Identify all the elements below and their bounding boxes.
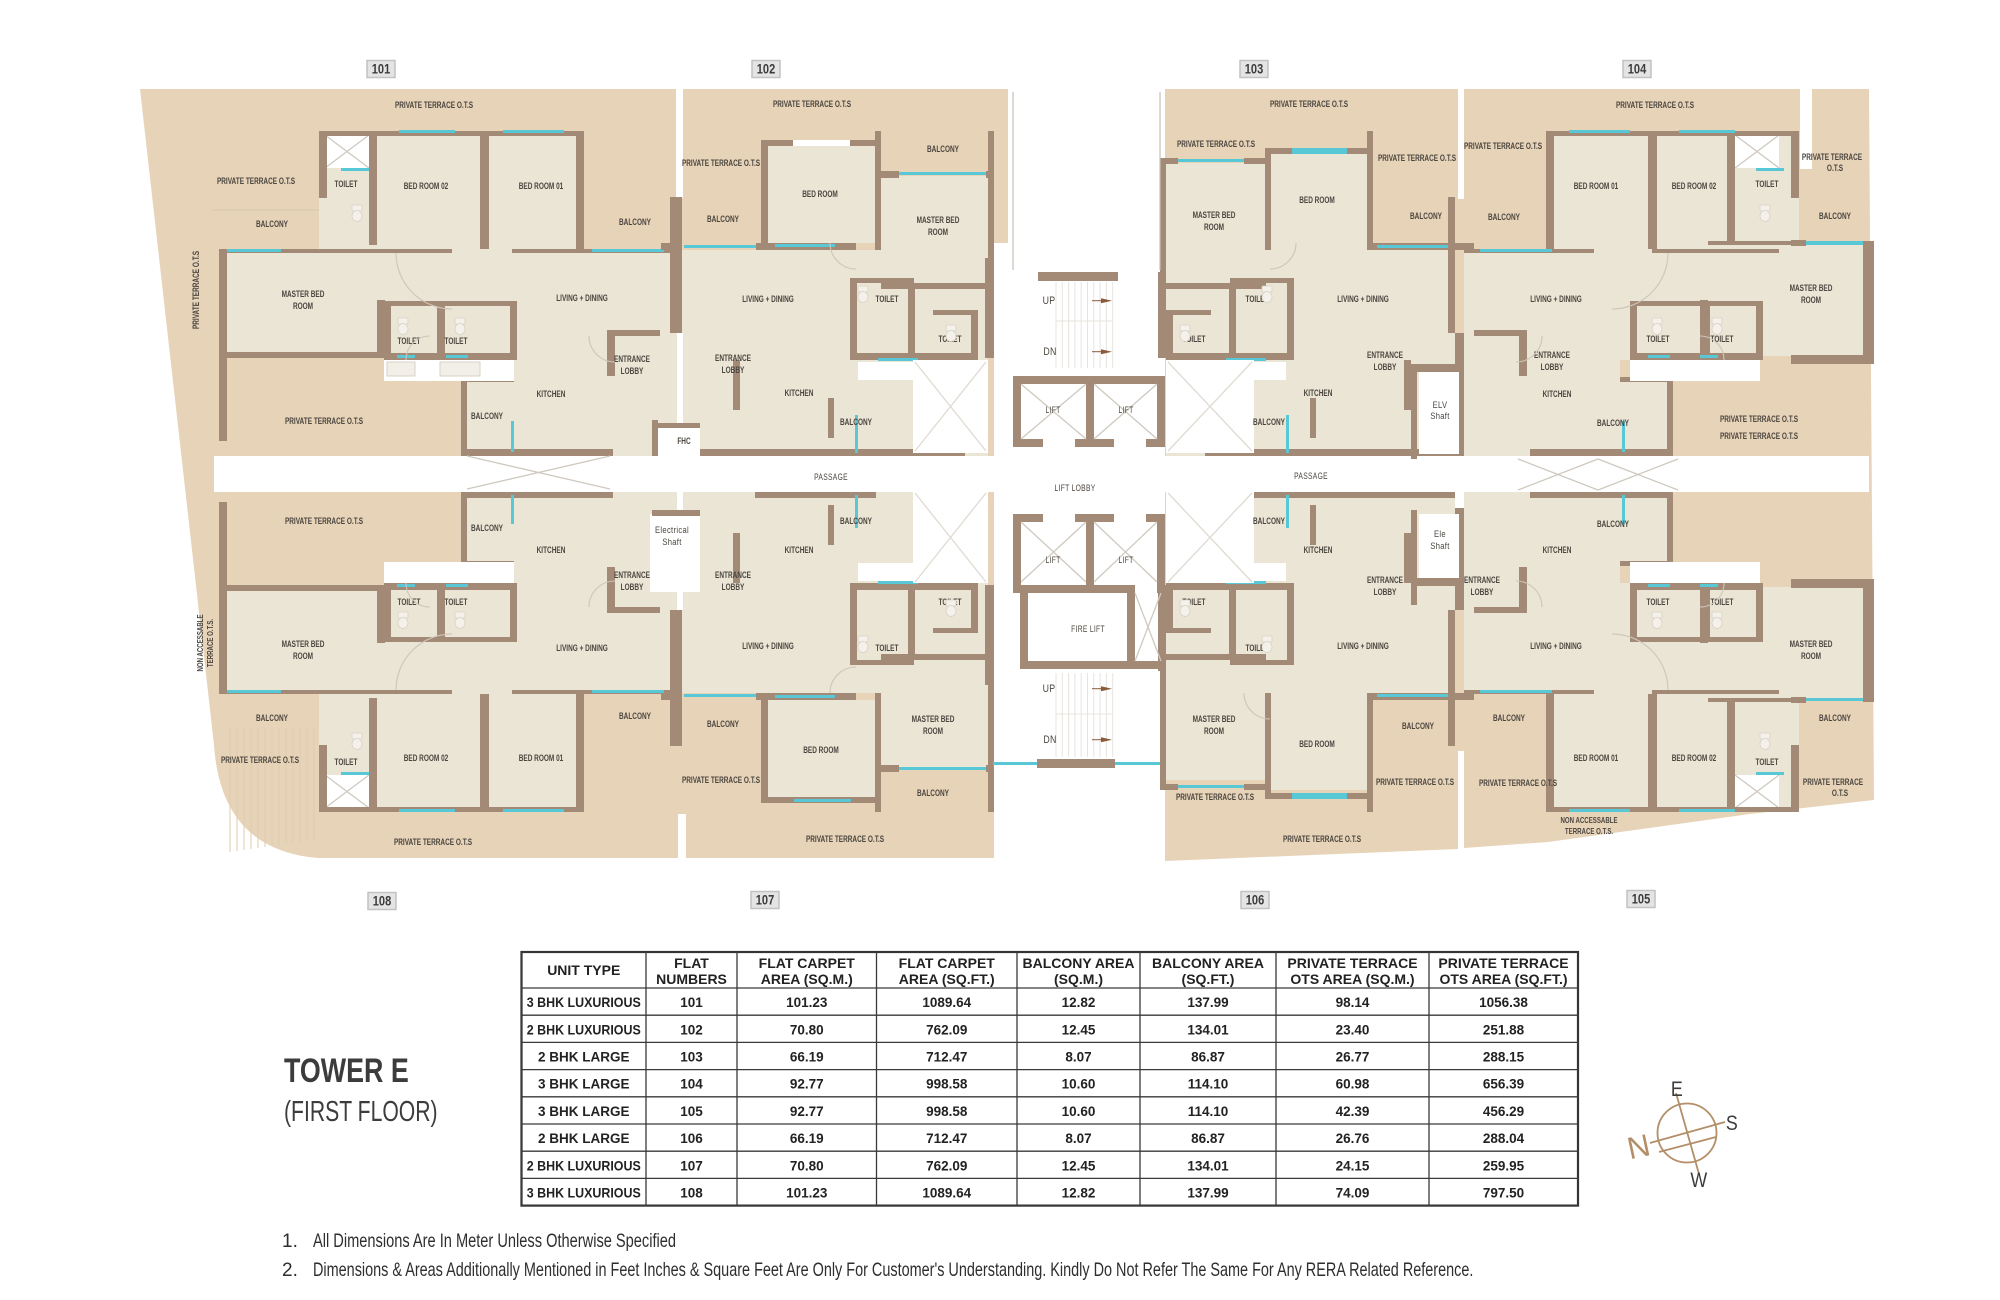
svg-text:456.29: 456.29: [1483, 1104, 1524, 1119]
svg-text:LIFT: LIFT: [1118, 555, 1133, 565]
svg-text:ENTRANCE: ENTRANCE: [1367, 350, 1403, 360]
svg-text:DN: DN: [1043, 346, 1056, 358]
svg-text:BALCONY: BALCONY: [1410, 211, 1443, 221]
svg-text:108: 108: [680, 1186, 703, 1201]
svg-text:92.77: 92.77: [790, 1104, 824, 1119]
svg-text:12.45: 12.45: [1062, 1022, 1096, 1037]
svg-text:LOBBY: LOBBY: [1471, 587, 1494, 597]
svg-text:BED ROOM 01: BED ROOM 01: [1574, 753, 1619, 763]
svg-text:103: 103: [680, 1050, 703, 1065]
svg-text:107: 107: [756, 892, 775, 907]
svg-text:TOILET: TOILET: [876, 643, 899, 653]
svg-text:TOILET: TOILET: [398, 597, 421, 607]
svg-text:PRIVATE TERRACE O.T.S: PRIVATE TERRACE O.T.S: [1376, 777, 1454, 787]
svg-text:KITCHEN: KITCHEN: [1543, 389, 1572, 399]
svg-text:3 BHK LUXURIOUS: 3 BHK LUXURIOUS: [527, 994, 641, 1010]
svg-text:762.09: 762.09: [926, 1022, 967, 1037]
svg-text:BALCONY: BALCONY: [619, 217, 652, 227]
svg-text:66.19: 66.19: [790, 1131, 824, 1146]
svg-text:LIFT LOBBY: LIFT LOBBY: [1054, 483, 1095, 493]
svg-text:Shaft: Shaft: [662, 536, 682, 547]
svg-text:TOWER E: TOWER E: [284, 1052, 409, 1090]
svg-text:3 BHK LARGE: 3 BHK LARGE: [538, 1104, 630, 1119]
svg-text:LOBBY: LOBBY: [1374, 587, 1397, 597]
svg-text:BED ROOM: BED ROOM: [802, 189, 838, 199]
svg-text:LIFT: LIFT: [1045, 555, 1060, 565]
svg-text:101.23: 101.23: [786, 995, 828, 1010]
svg-text:1.: 1.: [282, 1231, 298, 1252]
svg-text:FIRE LIFT: FIRE LIFT: [1071, 624, 1105, 634]
svg-text:BALCONY: BALCONY: [471, 523, 504, 533]
svg-text:ENTRANCE: ENTRANCE: [614, 570, 650, 580]
svg-text:ENTRANCE: ENTRANCE: [1464, 575, 1500, 585]
svg-text:KITCHEN: KITCHEN: [1304, 388, 1333, 398]
svg-text:PRIVATE TERRACE: PRIVATE TERRACE: [1287, 955, 1417, 971]
svg-text:MASTER BED: MASTER BED: [912, 714, 955, 724]
svg-text:PRIVATE TERRACE O.T.S: PRIVATE TERRACE O.T.S: [773, 99, 851, 109]
svg-text:Shaft: Shaft: [1430, 540, 1450, 551]
svg-text:LIVING + DINING: LIVING + DINING: [1530, 294, 1582, 304]
svg-text:BED ROOM 02: BED ROOM 02: [404, 181, 449, 191]
svg-text:ROOM: ROOM: [923, 726, 943, 736]
svg-text:S: S: [1726, 1112, 1738, 1136]
svg-text:BALCONY: BALCONY: [1253, 516, 1286, 526]
svg-text:PRIVATE TERRACE O.T.S: PRIVATE TERRACE O.T.S: [1720, 431, 1798, 441]
svg-text:656.39: 656.39: [1483, 1077, 1524, 1092]
svg-text:BALCONY: BALCONY: [471, 411, 504, 421]
svg-text:70.80: 70.80: [790, 1158, 824, 1173]
svg-text:KITCHEN: KITCHEN: [785, 388, 814, 398]
svg-text:BALCONY: BALCONY: [707, 214, 740, 224]
svg-text:PRIVATE TERRACE O.T.S: PRIVATE TERRACE O.T.S: [1177, 139, 1255, 149]
svg-text:10.60: 10.60: [1062, 1077, 1096, 1092]
svg-text:UP: UP: [1043, 683, 1056, 695]
svg-text:PRIVATE TERRACE O.T.S: PRIVATE TERRACE O.T.S: [682, 158, 760, 168]
svg-text:BALCONY: BALCONY: [917, 788, 950, 798]
svg-text:BALCONY: BALCONY: [1597, 418, 1630, 428]
svg-text:2 BHK LARGE: 2 BHK LARGE: [538, 1050, 630, 1065]
svg-text:114.10: 114.10: [1188, 1104, 1229, 1119]
svg-text:137.99: 137.99: [1187, 995, 1228, 1010]
svg-text:TERRACE O.T.S.: TERRACE O.T.S.: [205, 619, 215, 667]
svg-text:BED ROOM 01: BED ROOM 01: [1574, 181, 1619, 191]
svg-text:ROOM: ROOM: [1801, 651, 1821, 661]
svg-text:KITCHEN: KITCHEN: [1543, 545, 1572, 555]
svg-text:BALCONY: BALCONY: [1819, 211, 1852, 221]
svg-text:ELV: ELV: [1433, 399, 1448, 410]
svg-text:NON ACCESSABLE: NON ACCESSABLE: [1560, 815, 1617, 825]
svg-text:26.76: 26.76: [1336, 1131, 1370, 1146]
svg-text:KITCHEN: KITCHEN: [785, 545, 814, 555]
svg-text:86.87: 86.87: [1191, 1050, 1225, 1065]
svg-text:LOBBY: LOBBY: [621, 582, 644, 592]
svg-text:LIVING + DINING: LIVING + DINING: [556, 293, 608, 303]
svg-text:LOBBY: LOBBY: [722, 365, 745, 375]
svg-text:DN: DN: [1043, 734, 1056, 746]
svg-text:E: E: [1671, 1078, 1683, 1102]
svg-text:712.47: 712.47: [926, 1131, 967, 1146]
svg-text:BALCONY AREA: BALCONY AREA: [1152, 955, 1264, 971]
svg-text:BALCONY: BALCONY: [1253, 417, 1286, 427]
svg-text:PRIVATE TERRACE O.T.S: PRIVATE TERRACE O.T.S: [1176, 792, 1254, 802]
svg-text:LIVING + DINING: LIVING + DINING: [1530, 641, 1582, 651]
svg-text:288.04: 288.04: [1483, 1131, 1525, 1146]
svg-text:TOILET: TOILET: [1647, 334, 1670, 344]
svg-text:12.82: 12.82: [1062, 1186, 1096, 1201]
svg-text:26.77: 26.77: [1336, 1050, 1370, 1065]
svg-text:LOBBY: LOBBY: [722, 582, 745, 592]
svg-text:998.58: 998.58: [926, 1104, 968, 1119]
svg-text:Shaft: Shaft: [1430, 410, 1450, 421]
svg-text:BALCONY: BALCONY: [840, 516, 873, 526]
svg-text:107: 107: [680, 1158, 703, 1173]
svg-text:BALCONY: BALCONY: [840, 417, 873, 427]
svg-text:BED ROOM 01: BED ROOM 01: [519, 181, 564, 191]
svg-text:23.40: 23.40: [1336, 1022, 1370, 1037]
svg-text:108: 108: [373, 893, 392, 908]
svg-text:PRIVATE TERRACE O.T.S: PRIVATE TERRACE O.T.S: [191, 251, 201, 329]
svg-text:712.47: 712.47: [926, 1050, 967, 1065]
svg-text:BALCONY: BALCONY: [1597, 519, 1630, 529]
svg-text:8.07: 8.07: [1065, 1050, 1091, 1065]
svg-text:LIVING + DINING: LIVING + DINING: [742, 294, 794, 304]
svg-text:LIFT: LIFT: [1118, 405, 1133, 415]
svg-text:OTS AREA (SQ.FT.): OTS AREA (SQ.FT.): [1439, 971, 1567, 987]
svg-text:MASTER BED: MASTER BED: [282, 289, 325, 299]
svg-text:BALCONY: BALCONY: [927, 144, 960, 154]
svg-text:KITCHEN: KITCHEN: [537, 545, 566, 555]
svg-text:ROOM: ROOM: [1204, 222, 1224, 232]
svg-text:ROOM: ROOM: [928, 227, 948, 237]
svg-text:TERRACE O.T.S.: TERRACE O.T.S.: [1565, 826, 1613, 836]
svg-text:102: 102: [757, 61, 776, 76]
svg-text:TOILET: TOILET: [445, 336, 468, 346]
svg-text:2 BHK LARGE: 2 BHK LARGE: [538, 1131, 630, 1146]
svg-text:BED ROOM: BED ROOM: [1299, 739, 1335, 749]
svg-text:PRIVATE TERRACE O.T.S: PRIVATE TERRACE O.T.S: [285, 416, 363, 426]
svg-text:UP: UP: [1043, 295, 1056, 307]
svg-text:106: 106: [1246, 892, 1265, 907]
svg-text:BALCONY: BALCONY: [1488, 212, 1521, 222]
svg-text:105: 105: [680, 1104, 703, 1119]
svg-text:ENTRANCE: ENTRANCE: [1367, 575, 1403, 585]
svg-text:W: W: [1690, 1169, 1707, 1193]
svg-text:PRIVATE TERRACE O.T.S: PRIVATE TERRACE O.T.S: [1283, 834, 1361, 844]
svg-text:(SQ.M.): (SQ.M.): [1054, 971, 1103, 987]
svg-text:106: 106: [680, 1131, 703, 1146]
svg-text:FLAT: FLAT: [674, 955, 709, 971]
svg-text:LIVING + DINING: LIVING + DINING: [1337, 294, 1389, 304]
svg-text:UNIT TYPE: UNIT TYPE: [547, 962, 620, 978]
svg-text:BALCONY AREA: BALCONY AREA: [1022, 955, 1134, 971]
svg-text:BED ROOM 02: BED ROOM 02: [1672, 181, 1717, 191]
svg-text:105: 105: [1632, 891, 1651, 906]
svg-text:1056.38: 1056.38: [1479, 995, 1528, 1010]
svg-text:PRIVATE TERRACE O.T.S: PRIVATE TERRACE O.T.S: [806, 834, 884, 844]
svg-text:BALCONY: BALCONY: [707, 719, 740, 729]
svg-text:101: 101: [372, 61, 391, 76]
svg-text:PRIVATE TERRACE O.T.S: PRIVATE TERRACE O.T.S: [1378, 153, 1456, 163]
svg-text:42.39: 42.39: [1336, 1104, 1370, 1119]
svg-text:762.09: 762.09: [926, 1158, 967, 1173]
svg-text:BALCONY: BALCONY: [256, 713, 289, 723]
svg-text:12.82: 12.82: [1062, 995, 1096, 1010]
svg-text:12.45: 12.45: [1062, 1158, 1096, 1173]
svg-text:MASTER BED: MASTER BED: [1790, 639, 1833, 649]
svg-text:2.: 2.: [282, 1260, 298, 1281]
svg-text:O.T.S: O.T.S: [1832, 788, 1848, 798]
svg-text:TOILET: TOILET: [1711, 334, 1734, 344]
svg-text:101: 101: [680, 995, 703, 1010]
svg-text:Ele: Ele: [1434, 528, 1446, 539]
svg-text:288.15: 288.15: [1483, 1050, 1525, 1065]
svg-text:NUMBERS: NUMBERS: [656, 971, 727, 987]
svg-text:137.99: 137.99: [1187, 1186, 1228, 1201]
svg-text:ROOM: ROOM: [293, 651, 313, 661]
svg-text:24.15: 24.15: [1336, 1158, 1370, 1173]
svg-text:BED ROOM: BED ROOM: [803, 745, 839, 755]
svg-text:LIFT: LIFT: [1045, 405, 1060, 415]
svg-text:TOILET: TOILET: [876, 294, 899, 304]
svg-text:ENTRANCE: ENTRANCE: [715, 570, 751, 580]
svg-text:LIVING + DINING: LIVING + DINING: [556, 643, 608, 653]
svg-text:92.77: 92.77: [790, 1077, 824, 1092]
svg-text:74.09: 74.09: [1336, 1186, 1370, 1201]
svg-text:PRIVATE TERRACE O.T.S: PRIVATE TERRACE O.T.S: [1720, 414, 1798, 424]
svg-text:MASTER BED: MASTER BED: [1193, 210, 1236, 220]
svg-text:FHC: FHC: [677, 436, 691, 446]
svg-text:BALCONY: BALCONY: [1402, 721, 1435, 731]
svg-text:998.58: 998.58: [926, 1077, 968, 1092]
svg-text:LOBBY: LOBBY: [1541, 362, 1564, 372]
svg-text:PRIVATE TERRACE O.T.S: PRIVATE TERRACE O.T.S: [1616, 100, 1694, 110]
svg-text:PRIVATE TERRACE: PRIVATE TERRACE: [1803, 777, 1863, 787]
svg-text:TOILET: TOILET: [398, 336, 421, 346]
svg-text:TOILET: TOILET: [1647, 597, 1670, 607]
svg-text:2 BHK LUXURIOUS: 2 BHK LUXURIOUS: [527, 1021, 641, 1037]
svg-text:PRIVATE TERRACE O.T.S: PRIVATE TERRACE O.T.S: [395, 100, 473, 110]
svg-text:104: 104: [680, 1077, 703, 1092]
svg-text:1089.64: 1089.64: [922, 995, 971, 1010]
svg-text:FLAT CARPET: FLAT CARPET: [759, 955, 856, 971]
svg-text:2 BHK LUXURIOUS: 2 BHK LUXURIOUS: [527, 1157, 641, 1173]
svg-text:259.95: 259.95: [1483, 1158, 1525, 1173]
svg-text:TOILET: TOILET: [335, 179, 358, 189]
svg-text:PASSAGE: PASSAGE: [814, 472, 848, 482]
svg-text:TOILET: TOILET: [1756, 757, 1779, 767]
svg-text:BED ROOM: BED ROOM: [1299, 195, 1335, 205]
svg-text:OTS AREA (SQ.M.): OTS AREA (SQ.M.): [1290, 971, 1414, 987]
svg-text:60.98: 60.98: [1336, 1077, 1370, 1092]
svg-text:Dimensions & Areas Additionall: Dimensions & Areas Additionally Mentione…: [313, 1259, 1473, 1280]
svg-text:ROOM: ROOM: [293, 301, 313, 311]
svg-text:BALCONY: BALCONY: [256, 219, 289, 229]
svg-text:797.50: 797.50: [1483, 1186, 1524, 1201]
svg-text:LIVING + DINING: LIVING + DINING: [742, 641, 794, 651]
svg-text:(FIRST FLOOR): (FIRST FLOOR): [284, 1096, 438, 1128]
svg-text:PRIVATE TERRACE O.T.S: PRIVATE TERRACE O.T.S: [1464, 141, 1542, 151]
svg-text:NON ACCESSABLE: NON ACCESSABLE: [195, 614, 205, 671]
svg-text:ROOM: ROOM: [1801, 295, 1821, 305]
svg-text:MASTER BED: MASTER BED: [1193, 714, 1236, 724]
svg-text:PRIVATE TERRACE: PRIVATE TERRACE: [1802, 152, 1862, 162]
svg-text:103: 103: [1245, 61, 1264, 76]
svg-text:PRIVATE TERRACE O.T.S: PRIVATE TERRACE O.T.S: [217, 176, 295, 186]
svg-text:Electrical: Electrical: [655, 524, 689, 535]
svg-text:ENTRANCE: ENTRANCE: [1534, 350, 1570, 360]
svg-text:ROOM: ROOM: [1204, 726, 1224, 736]
svg-text:PRIVATE TERRACE O.T.S: PRIVATE TERRACE O.T.S: [221, 755, 299, 765]
svg-text:102: 102: [680, 1022, 703, 1037]
svg-text:MASTER BED: MASTER BED: [1790, 283, 1833, 293]
svg-text:ENTRANCE: ENTRANCE: [614, 354, 650, 364]
svg-text:LOBBY: LOBBY: [621, 366, 644, 376]
svg-text:98.14: 98.14: [1336, 995, 1370, 1010]
svg-text:BED ROOM 01: BED ROOM 01: [519, 753, 564, 763]
svg-text:101.23: 101.23: [786, 1186, 828, 1201]
svg-text:134.01: 134.01: [1187, 1022, 1229, 1037]
svg-text:251.88: 251.88: [1483, 1022, 1525, 1037]
svg-text:PRIVATE TERRACE O.T.S: PRIVATE TERRACE O.T.S: [682, 775, 760, 785]
svg-text:104: 104: [1628, 61, 1647, 76]
svg-text:TOILET: TOILET: [445, 597, 468, 607]
svg-text:70.80: 70.80: [790, 1022, 824, 1037]
svg-text:114.10: 114.10: [1188, 1077, 1229, 1092]
svg-text:1089.64: 1089.64: [922, 1186, 971, 1201]
svg-text:BED ROOM 02: BED ROOM 02: [404, 753, 449, 763]
svg-text:FLAT CARPET: FLAT CARPET: [899, 955, 996, 971]
svg-text:3 BHK LARGE: 3 BHK LARGE: [538, 1077, 630, 1092]
svg-text:PRIVATE TERRACE O.T.S: PRIVATE TERRACE O.T.S: [394, 837, 472, 847]
svg-text:All Dimensions Are In Meter Un: All Dimensions Are In Meter Unless Other…: [313, 1230, 676, 1251]
svg-text:BALCONY: BALCONY: [619, 711, 652, 721]
svg-text:ENTRANCE: ENTRANCE: [715, 353, 751, 363]
svg-text:86.87: 86.87: [1191, 1131, 1225, 1146]
svg-text:(SQ.FT.): (SQ.FT.): [1182, 971, 1235, 987]
svg-text:TOILET: TOILET: [335, 757, 358, 767]
svg-text:PASSAGE: PASSAGE: [1294, 471, 1328, 481]
svg-text:134.01: 134.01: [1187, 1158, 1229, 1173]
svg-text:PRIVATE TERRACE O.T.S: PRIVATE TERRACE O.T.S: [285, 516, 363, 526]
svg-text:10.60: 10.60: [1062, 1104, 1096, 1119]
svg-text:AREA (SQ.FT.): AREA (SQ.FT.): [899, 971, 995, 987]
svg-text:PRIVATE TERRACE O.T.S: PRIVATE TERRACE O.T.S: [1270, 99, 1348, 109]
svg-text:MASTER BED: MASTER BED: [282, 639, 325, 649]
svg-text:KITCHEN: KITCHEN: [1304, 545, 1333, 555]
svg-text:TOILET: TOILET: [1756, 179, 1779, 189]
svg-text:PRIVATE TERRACE O.T.S: PRIVATE TERRACE O.T.S: [1479, 778, 1557, 788]
svg-text:BED ROOM 02: BED ROOM 02: [1672, 753, 1717, 763]
svg-text:MASTER BED: MASTER BED: [917, 215, 960, 225]
svg-text:LIVING + DINING: LIVING + DINING: [1337, 641, 1389, 651]
svg-text:3 BHK LUXURIOUS: 3 BHK LUXURIOUS: [527, 1185, 641, 1201]
svg-text:O.T.S: O.T.S: [1827, 163, 1843, 173]
svg-text:AREA (SQ.M.): AREA (SQ.M.): [761, 971, 853, 987]
svg-text:BALCONY: BALCONY: [1493, 713, 1526, 723]
svg-text:LOBBY: LOBBY: [1374, 362, 1397, 372]
svg-text:8.07: 8.07: [1065, 1131, 1091, 1146]
svg-text:PRIVATE TERRACE: PRIVATE TERRACE: [1438, 955, 1568, 971]
svg-text:KITCHEN: KITCHEN: [537, 389, 566, 399]
svg-text:66.19: 66.19: [790, 1050, 824, 1065]
svg-text:BALCONY: BALCONY: [1819, 713, 1852, 723]
